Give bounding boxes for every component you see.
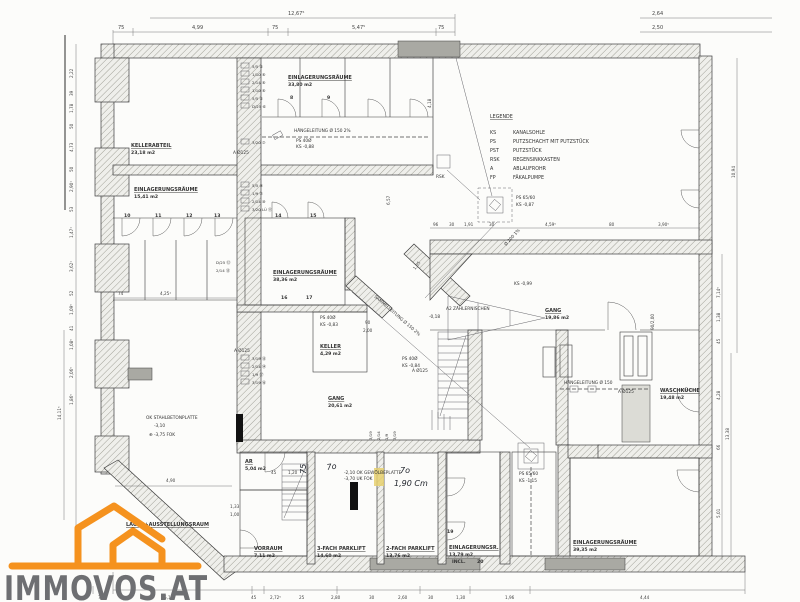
legend-abbr: PS <box>490 139 496 145</box>
room-number: 14 <box>275 213 281 219</box>
legend: LEGENDE KS KANALSOHLE PS PUTZSCHACHT MIT… <box>490 114 590 181</box>
flue: 1/10 ⑥ <box>252 88 266 93</box>
room-area: 19,86 m2 <box>545 315 569 321</box>
room-number: 19 <box>447 529 453 535</box>
note: -2,10 OK GEWÖLBEPLATTE <box>344 469 402 476</box>
flue: D/25 ⑥ <box>252 104 266 109</box>
dim: 96 <box>433 222 439 227</box>
inner-walls <box>113 58 712 564</box>
ps-label: KS -0,88 <box>296 144 314 150</box>
ps-label: KS -0,87 <box>516 202 534 208</box>
dim: 1,09⁵ <box>69 304 74 315</box>
room-parklift2: 2-FACH PARKLIFT <box>386 546 435 552</box>
dim: 2,90¹ <box>69 181 74 192</box>
floor-plan-drawing: 12,67⁵ 2,64 75 4,99 75 5,47⁵ 75 2,50 2,2… <box>0 0 800 602</box>
legend-abbr: A <box>490 166 494 172</box>
room-area: 13,76 m2 <box>386 553 410 559</box>
note-labels: OK STAHLBETONPLATTE -3,10 ⊕ -3,75 FOK -2… <box>146 314 440 482</box>
dim: 2,50 <box>652 25 663 31</box>
room-kellerabteil: KELLERABTEIL <box>131 143 172 149</box>
door-width: 90 <box>365 320 371 325</box>
dim: 1,78 <box>69 103 74 113</box>
room-einlager-3935: EINLAGERUNGSRÄUME <box>573 539 637 546</box>
room-area: 38,36 m2 <box>273 277 297 283</box>
dim: 2,60 <box>398 595 408 600</box>
room-area: 15,41 m2 <box>134 194 158 200</box>
ps-label: PS 65/60 <box>519 471 538 477</box>
dim: 30 <box>449 222 455 227</box>
dim: 1,33 <box>230 504 240 509</box>
dim: 52 <box>69 290 74 296</box>
main-staircase <box>432 332 468 430</box>
brand-wordmark: IMMOVOS.AT <box>4 569 208 602</box>
flue: 1/9 ⑦ <box>252 191 263 196</box>
dim: 10,94 <box>731 166 736 178</box>
haengeleitung-top-label: HÄNGELEITUNG Ø 150 2% <box>294 127 351 134</box>
ps-label: KS -1,15 <box>519 478 537 484</box>
dim: 45 <box>251 595 257 600</box>
note: -3,70 UK FOK <box>344 476 373 482</box>
pen-note: 75 <box>299 464 308 474</box>
dim: 80 <box>609 222 615 227</box>
legend-abbr: FP <box>490 175 496 181</box>
room-area: 19,48 m2 <box>660 395 684 401</box>
dim: 30 <box>428 595 434 600</box>
a125-label: A Ø125 <box>618 388 634 395</box>
flue: D/25 ⑫ <box>216 260 230 265</box>
legend-abbr: RSK <box>490 157 500 163</box>
flue: 5/5 ⑤ <box>252 96 263 101</box>
dim: 1,96 <box>505 595 515 600</box>
room-area: 14,60 m2 <box>317 553 341 559</box>
filled-door-marker-2 <box>350 482 358 510</box>
door-height: 2,00 <box>363 328 373 333</box>
a125-label: A Ø125 <box>233 149 249 156</box>
room-zaehlernischen: A2 ZÄHLERNISCHEN <box>446 305 490 312</box>
room-area: 33,80 m2 <box>288 82 312 88</box>
dim: 1,00 <box>230 512 240 517</box>
legend-label: KANALSOHLE <box>513 130 545 136</box>
room-vorraum: VORRAUM <box>254 546 283 552</box>
ps-label: PS 40Ø <box>296 137 312 144</box>
dim: 7,14⁵ <box>716 287 721 298</box>
flue: 5/5 ⑤ <box>252 64 263 69</box>
dim: 30 <box>369 595 375 600</box>
legend-label: FÄKALPUMPE <box>513 174 544 181</box>
dim: 6,57 <box>386 195 391 205</box>
room-keller: KELLER <box>320 344 341 350</box>
dim: 3,90⁵ <box>658 222 669 227</box>
dim: 1,38 <box>716 312 721 322</box>
dim: 66 <box>716 444 721 450</box>
dim: 5,01 <box>716 508 721 518</box>
room-number: 12 <box>186 213 192 219</box>
ps-label: PS 40Ø <box>320 314 336 321</box>
dim: 53 <box>69 206 74 212</box>
room-ar: AR <box>245 459 253 465</box>
dim: 30 <box>489 222 495 227</box>
dim: 4,73 <box>69 142 74 152</box>
dim: 50 <box>69 123 74 129</box>
room-number: 17 <box>306 295 312 301</box>
room-einlager-1379: EINLAGERUNGSR. <box>449 545 499 551</box>
dim: 25 <box>299 595 305 600</box>
flue: 3/20 ⑦ <box>252 140 266 145</box>
a125-label: A Ø125 <box>412 367 428 374</box>
dim: 2,06⁵ <box>69 367 74 378</box>
outer-walls <box>95 41 745 580</box>
room-number: 9 <box>327 95 330 101</box>
room-parklift3: 3-FACH PARKLIFT <box>317 546 366 552</box>
filled-door-marker <box>236 414 243 442</box>
pen-note: 7o <box>326 462 337 472</box>
dim: 2,72⁵ <box>270 595 281 600</box>
dim-top-right1: 2,64 <box>652 11 663 17</box>
flue: 5/5 ⑨ <box>252 183 263 188</box>
dim: 14,11⁵ <box>57 406 62 420</box>
flue: 2/14 ⑥ <box>252 80 266 85</box>
room-einlager-3836: EINLAGERUNGSRÄUME <box>273 269 337 276</box>
dim: 4,44 <box>640 595 650 600</box>
legend-label: REGENSINKKASTEN <box>513 157 560 163</box>
room-area: 20,61 m2 <box>328 403 352 409</box>
dim: 4,59⁵ <box>545 222 556 227</box>
room-area: 23,18 m2 <box>131 150 155 156</box>
room-gang-2061: GANG <box>328 396 344 402</box>
dim: 1,20 <box>288 470 298 475</box>
flue: 3/19 <box>368 431 373 440</box>
room-einlager-1541: EINLAGERUNGSRÄUME <box>134 186 198 193</box>
dim: 5,47⁵ <box>352 25 365 31</box>
room-number: 10 <box>124 213 130 219</box>
flue: 1/9 <box>384 433 389 440</box>
dim: 1,86⁵ <box>69 394 74 405</box>
room-area: 5,04 m2 <box>245 466 266 472</box>
haengeleitung-right-label: HÄNGELEITUNG Ø 150 <box>564 379 613 386</box>
note: OK STAHLBETONPLATTE <box>146 415 198 421</box>
dim: 4,99 <box>192 25 203 31</box>
legend-title: LEGENDE <box>490 114 513 120</box>
flue: 2/14 ⑬ <box>216 268 230 273</box>
rsk-label: RSK <box>436 174 445 180</box>
dim: 74 <box>118 291 124 296</box>
dim: 45 <box>716 338 721 344</box>
room-number: 8 <box>290 95 293 101</box>
room-area: 7,11 m2 <box>254 553 275 559</box>
flue: 1/10 ⑥ <box>252 72 266 77</box>
dim-top-main: 12,67⁵ <box>288 11 304 17</box>
dim: 39 <box>69 90 74 96</box>
dim: 75 <box>438 25 444 31</box>
dim: 75 <box>118 25 124 31</box>
ps-label: KS -0,83 <box>320 322 338 328</box>
flue: 2/14 ⑩ <box>252 199 266 204</box>
dim: 2,22 <box>69 68 74 78</box>
note: -3,10 <box>154 423 165 429</box>
ks-label: KS -0,99 <box>514 281 532 287</box>
flue: 3/19 <box>392 431 397 440</box>
room-area: 4,29 m2 <box>320 351 341 357</box>
dim: 4,28 <box>716 390 721 400</box>
flue: 3/19 ⑮ <box>252 356 266 361</box>
dim: 13,38 <box>725 428 730 440</box>
room-area: 39,35 m2 <box>573 547 597 553</box>
legend-label: PUTZSCHACHT MIT PUTZSTÜCK <box>513 138 590 145</box>
dim: 1,47¹ <box>69 227 74 238</box>
ps-label: PS 40Ø <box>402 355 418 362</box>
dim: 3,62¹ <box>69 261 74 272</box>
flue: 3/20 LÜ ⑪ <box>252 207 272 212</box>
room-number: 20 <box>477 559 483 565</box>
dim: 41 <box>69 325 74 331</box>
dim: 2,80 <box>331 595 341 600</box>
room-number: 11 <box>155 213 161 219</box>
legend-label: PUTZSTÜCK <box>513 147 542 154</box>
dim: 4,25¹ <box>160 291 171 296</box>
scanned-floor-plan-page: 12,67⁵ 2,64 75 4,99 75 5,47⁵ 75 2,50 2,2… <box>0 0 800 602</box>
room-area: 13,79 m2 <box>449 552 473 558</box>
dim: 50 <box>69 166 74 172</box>
a125-label: A Ø125 <box>234 347 250 354</box>
dim: 1,91 <box>464 222 474 227</box>
room-extra: INCL. <box>452 559 466 565</box>
room-labels: KELLERABTEIL 23,18 m2 EINLAGERUNGSRÄUME … <box>126 74 700 565</box>
room-number: 13 <box>214 213 220 219</box>
dim: 45 <box>271 470 277 475</box>
ps-label: PS 65/60 <box>516 195 535 201</box>
room-number: 15 <box>310 213 316 219</box>
legend-label: ABLAUFROHR <box>513 166 547 172</box>
dim: 1,08⁵ <box>69 339 74 350</box>
dim: 4,90 <box>166 478 176 483</box>
room-einlager-3380: EINLAGERUNGSRÄUME <box>288 74 352 81</box>
flue: 3/19 ⑯ <box>252 380 266 385</box>
flue: 2/14 ⑭ <box>252 364 266 369</box>
dim: 1,30 <box>456 595 466 600</box>
room-gang-1986: GANG <box>545 308 561 314</box>
door-tag: 90/2,00 <box>650 314 655 330</box>
flue: 1/9 ⑰ <box>252 372 263 377</box>
pen-note: 1,90 Cm <box>394 479 428 488</box>
dim: 4,18 <box>427 98 432 108</box>
pen-note: 7o <box>400 466 410 475</box>
note: -0,18 <box>429 314 440 320</box>
note: ⊕ -3,75 FOK <box>149 432 175 438</box>
room-number: 16 <box>281 295 287 301</box>
dim: 75 <box>272 25 278 31</box>
room-waschkueche: WASCHKÜCHE <box>660 387 700 394</box>
legend-abbr: PST <box>490 148 499 154</box>
legend-abbr: KS <box>490 130 496 136</box>
flue: 2/14 <box>376 431 381 440</box>
